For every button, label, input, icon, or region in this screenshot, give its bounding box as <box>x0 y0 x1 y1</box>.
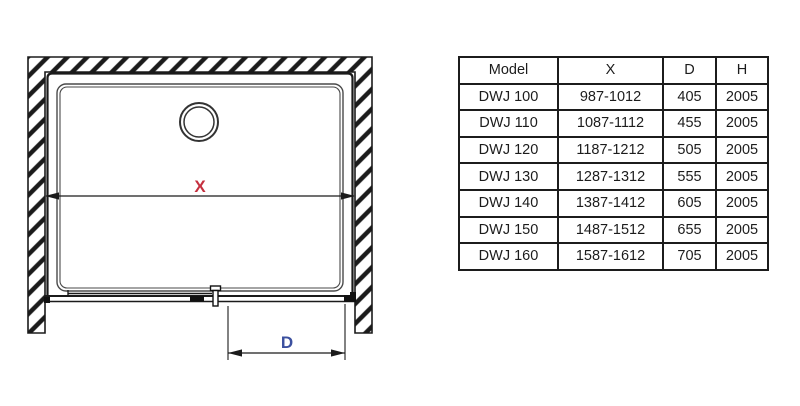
cell-h: 2005 <box>716 190 768 217</box>
table-row: DWJ 160 1587-1612 705 2005 <box>459 243 768 270</box>
cell-h: 2005 <box>716 110 768 137</box>
cell-d: 505 <box>663 137 716 164</box>
dimension-x-label: X <box>194 177 206 196</box>
cell-d: 405 <box>663 84 716 111</box>
col-header-x: X <box>558 57 663 84</box>
col-header-h: H <box>716 57 768 84</box>
cell-model: DWJ 150 <box>459 217 558 244</box>
shower-door-front-view-drawing: X D <box>0 0 430 401</box>
table-row: DWJ 100 987-1012 405 2005 <box>459 84 768 111</box>
table-header-row: Model X D H <box>459 57 768 84</box>
cell-x: 1187-1212 <box>558 137 663 164</box>
table-row: DWJ 130 1287-1312 555 2005 <box>459 163 768 190</box>
dimension-d-arrow-right <box>331 349 345 356</box>
cell-model: DWJ 130 <box>459 163 558 190</box>
cell-model: DWJ 160 <box>459 243 558 270</box>
cell-model: DWJ 120 <box>459 137 558 164</box>
cell-x: 1087-1112 <box>558 110 663 137</box>
cell-x: 1287-1312 <box>558 163 663 190</box>
table-row: DWJ 120 1187-1212 505 2005 <box>459 137 768 164</box>
technical-diagram: X D <box>0 0 430 401</box>
table-row: DWJ 140 1387-1412 605 2005 <box>459 190 768 217</box>
cell-h: 2005 <box>716 163 768 190</box>
cell-d: 705 <box>663 243 716 270</box>
cell-d: 455 <box>663 110 716 137</box>
cell-model: DWJ 140 <box>459 190 558 217</box>
cell-x: 987-1012 <box>558 84 663 111</box>
col-header-model: Model <box>459 57 558 84</box>
table-row: DWJ 110 1087-1112 455 2005 <box>459 110 768 137</box>
handle-body <box>213 291 218 307</box>
knob-circle-outer <box>180 103 218 141</box>
cell-model: DWJ 100 <box>459 84 558 111</box>
cell-h: 2005 <box>716 243 768 270</box>
cell-x: 1387-1412 <box>558 190 663 217</box>
cell-d: 555 <box>663 163 716 190</box>
cell-x: 1487-1512 <box>558 217 663 244</box>
cell-x: 1587-1612 <box>558 243 663 270</box>
cell-model: DWJ 110 <box>459 110 558 137</box>
cell-h: 2005 <box>716 84 768 111</box>
dimension-d-label: D <box>281 333 293 352</box>
left-rail-stopper <box>44 297 50 303</box>
cell-d: 655 <box>663 217 716 244</box>
table-row: DWJ 150 1487-1512 655 2005 <box>459 217 768 244</box>
cell-h: 2005 <box>716 217 768 244</box>
dimensions-table-container: Model X D H DWJ 100 987-1012 405 2005 DW… <box>458 56 769 271</box>
col-header-d: D <box>663 57 716 84</box>
cell-h: 2005 <box>716 137 768 164</box>
dimensions-table: Model X D H DWJ 100 987-1012 405 2005 DW… <box>458 56 769 271</box>
roller-carriage <box>190 296 204 302</box>
cell-d: 605 <box>663 190 716 217</box>
dimension-d-arrow-left <box>228 349 242 356</box>
right-wall-bracket <box>344 292 356 302</box>
